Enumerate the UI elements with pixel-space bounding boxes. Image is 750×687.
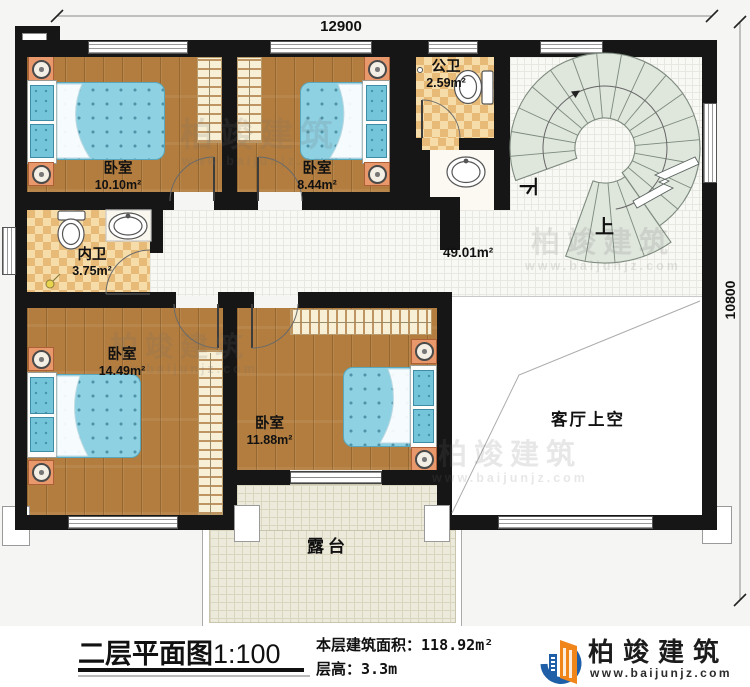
stair-down-label: 下 bbox=[516, 177, 543, 196]
room-label-bedroom-top-mid: 卧室8.44m² bbox=[272, 161, 362, 192]
room-label-bedroom-bottom-left: 卧室14.49m² bbox=[77, 347, 167, 378]
sink-faucet bbox=[126, 214, 130, 218]
room-label-bedroom-top-left: 卧室10.10m² bbox=[73, 161, 163, 192]
floor-plan-canvas: 柏竣建筑www.baijunjz.com 柏竣建筑www.baijunjz.co… bbox=[0, 0, 750, 687]
logo-name: 柏竣建筑 bbox=[588, 632, 728, 669]
door-swing-arc bbox=[106, 100, 460, 348]
sink-inner bbox=[114, 217, 142, 235]
room-label-bedroom-bottom-mid: 卧室11.88m² bbox=[222, 416, 317, 447]
plan-overlay bbox=[0, 0, 750, 687]
wall-lamp-icon bbox=[46, 280, 54, 288]
room-label-public-bath: 公卫2.59m² bbox=[414, 59, 478, 90]
stair-up-label: 上 bbox=[595, 212, 614, 239]
sink-inner bbox=[452, 162, 480, 183]
door-leaf bbox=[106, 100, 422, 348]
terrace-label: 露台 bbox=[307, 532, 349, 557]
dimension-top-value: 12900 bbox=[311, 18, 371, 35]
hall-area-label: 49.01m² bbox=[443, 245, 493, 260]
title-block: 二层平面图1:100 本层建筑面积：118.92m² 层高：3.3m 柏竣建筑 … bbox=[0, 626, 750, 687]
logo-url: www.baijunjz.com bbox=[590, 666, 732, 680]
toilet-tank bbox=[482, 71, 493, 104]
dimension-right-value: 10800 bbox=[722, 270, 738, 330]
dimension-tick bbox=[51, 10, 746, 606]
toilet-bowl-inner bbox=[63, 224, 80, 245]
sink-faucet bbox=[464, 159, 468, 163]
dimension-line bbox=[57, 16, 740, 600]
logo: 柏竣建筑 www.baijunjz.com bbox=[0, 638, 750, 686]
logo-building-icon bbox=[536, 634, 586, 687]
living-void-label: 客厅上空 bbox=[551, 406, 625, 430]
room-label-inner-bath: 内卫3.75m² bbox=[58, 247, 126, 278]
